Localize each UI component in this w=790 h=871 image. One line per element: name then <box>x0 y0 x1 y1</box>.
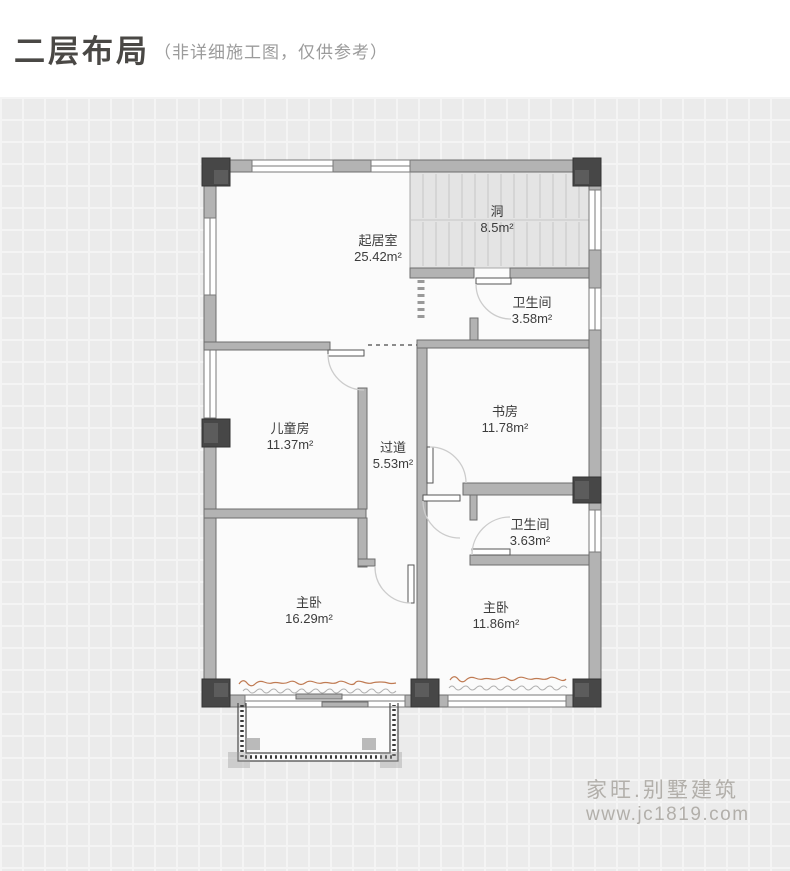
room-area: 11.78m² <box>482 420 529 436</box>
room-area: 11.86m² <box>473 616 520 632</box>
room-label: 书房 11.78m² <box>482 404 529 437</box>
room-name: 起居室 <box>354 233 402 249</box>
room-name: 主卧 <box>473 600 520 616</box>
floor-plan-drawing <box>0 0 790 871</box>
room-area: 25.42m² <box>354 249 402 265</box>
room-area: 8.5m² <box>480 220 513 236</box>
room-name: 卫生间 <box>510 517 550 533</box>
room-label: 卫生间 3.63m² <box>510 517 550 550</box>
room-name: 过道 <box>373 440 413 456</box>
room-name: 洞 <box>480 204 513 220</box>
room-label: 主卧 16.29m² <box>285 595 333 628</box>
watermark: 家旺.别墅建筑 www.jc1819.com <box>586 774 750 826</box>
room-area: 16.29m² <box>285 611 333 627</box>
room-area: 3.58m² <box>512 311 552 327</box>
room-area: 11.37m² <box>267 437 314 453</box>
room-name: 书房 <box>482 404 529 420</box>
watermark-url: www.jc1819.com <box>586 804 750 826</box>
room-label: 洞 8.5m² <box>480 204 513 237</box>
room-label: 起居室 25.42m² <box>354 233 402 266</box>
room-label: 儿童房 11.37m² <box>267 421 314 454</box>
room-name: 卫生间 <box>512 295 552 311</box>
room-area: 3.63m² <box>510 533 550 549</box>
room-area: 5.53m² <box>373 456 413 472</box>
room-name: 主卧 <box>285 595 333 611</box>
floor-plan: 起居室 25.42m² 洞 8.5m² 卫生间 3.58m² 儿童房 11.37… <box>0 0 790 871</box>
room-label: 过道 5.53m² <box>373 440 413 473</box>
room-label: 主卧 11.86m² <box>473 600 520 633</box>
room-label: 卫生间 3.58m² <box>512 295 552 328</box>
room-name: 儿童房 <box>267 421 314 437</box>
watermark-brand: 家旺.别墅建筑 <box>586 774 750 804</box>
